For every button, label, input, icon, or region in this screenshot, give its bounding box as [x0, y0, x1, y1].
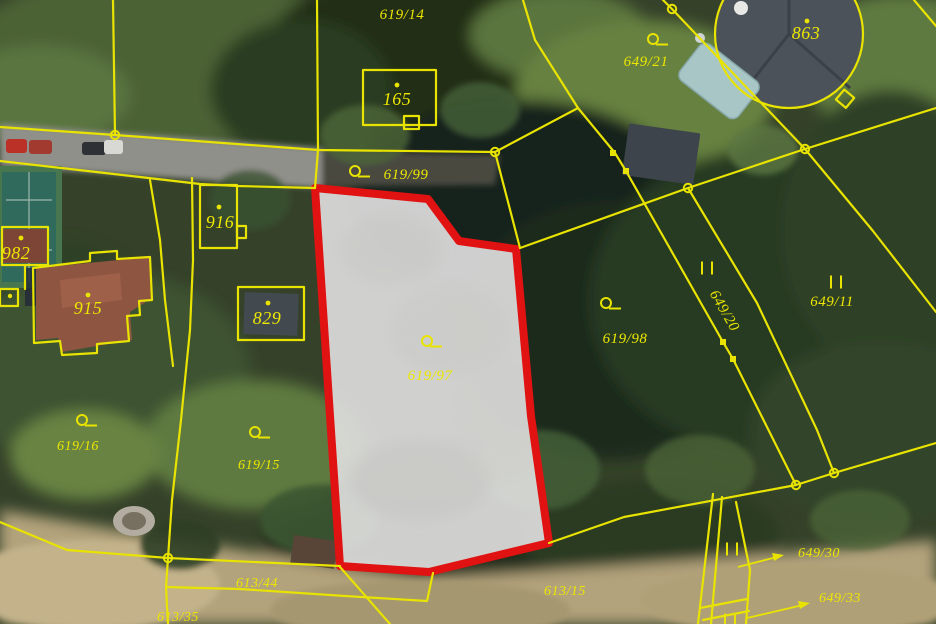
parcel-label-619-14: 619/14: [380, 7, 425, 23]
boundary-node-square: [623, 168, 629, 174]
parcel-label-649-21: 649/21: [624, 54, 669, 70]
boundary-node-square: [610, 150, 616, 156]
parcel-label-649-33: 649/33: [819, 591, 861, 606]
boundary-node-square: [730, 356, 736, 362]
building-point: [395, 83, 400, 88]
cadastral-map: 619/14 165 649/21 863 619/99 916 982 915…: [0, 0, 936, 624]
building-label-165: 165: [383, 89, 412, 109]
parcel-label-619-98: 619/98: [603, 331, 648, 347]
building-point: [86, 293, 91, 298]
parcel-label-619-99: 619/99: [384, 167, 429, 183]
boundary-node-square: [720, 339, 726, 345]
parcel-label-619-16: 619/16: [57, 439, 99, 454]
parcel-label-613-15: 613/15: [544, 584, 586, 599]
parcel-label-619-97: 619/97: [408, 368, 454, 384]
building-label-915: 915: [74, 298, 103, 318]
building-point: [19, 236, 24, 241]
building-point: [266, 301, 271, 306]
parcel-label-619-15: 619/15: [238, 458, 280, 473]
building-label-916: 916: [206, 212, 235, 232]
building-point: [217, 205, 222, 210]
building-label-829: 829: [253, 308, 282, 328]
cadastral-map-viewport[interactable]: 619/14 165 649/21 863 619/99 916 982 915…: [0, 0, 936, 624]
building-point: [8, 294, 12, 298]
building-label-982: 982: [2, 243, 31, 263]
parcel-label-613-35: 613/35: [157, 610, 199, 624]
building-label-863: 863: [792, 23, 821, 43]
parcel-label-613-44: 613/44: [236, 576, 278, 591]
parcel-label-649-30: 649/30: [798, 546, 840, 561]
parcel-label-649-11: 649/11: [810, 294, 854, 310]
house-roof-dark: [622, 123, 701, 185]
garden-hut: [113, 506, 155, 536]
